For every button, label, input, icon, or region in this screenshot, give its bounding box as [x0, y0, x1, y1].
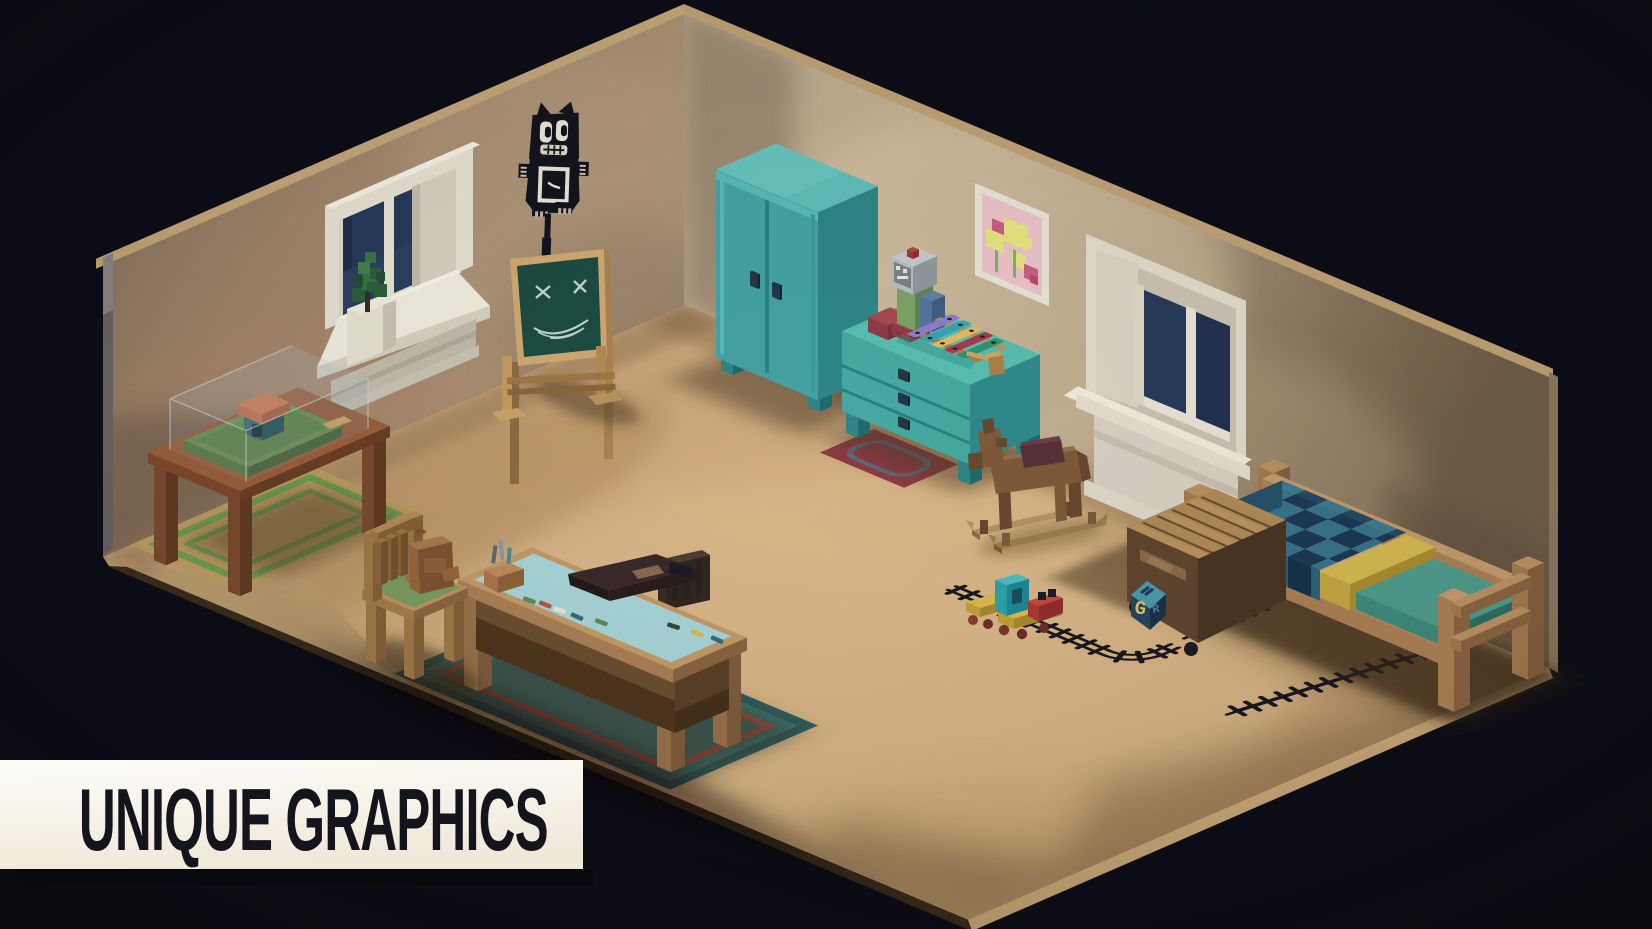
- svg-text:UNIQUE GRAPHICS: UNIQUE GRAPHICS: [79, 772, 548, 870]
